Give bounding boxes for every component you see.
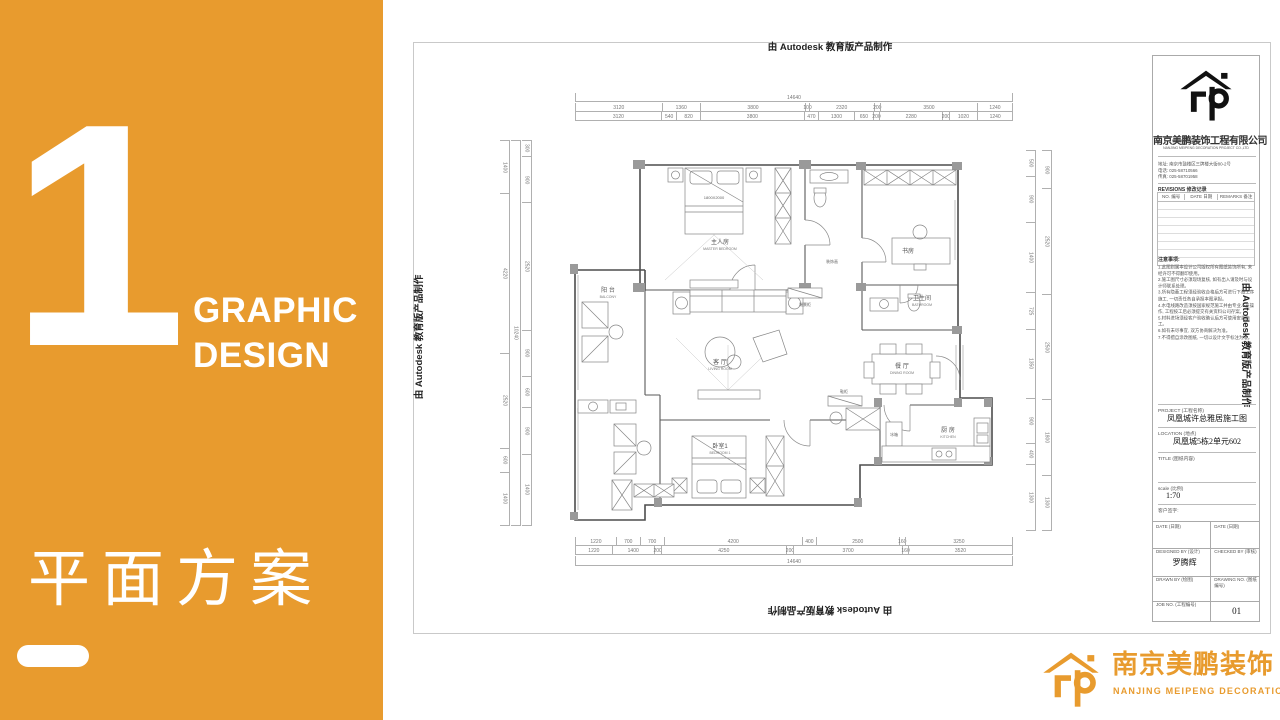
- study-desk: [892, 225, 950, 270]
- dimension-value: 3700: [793, 546, 902, 555]
- signature-grid: DATE (日期) DATE (日期) DESIGNED BY (设计) 罗腾辉…: [1153, 521, 1259, 621]
- dimension-value: 4220: [500, 193, 510, 352]
- drawing-no-cell: DRAWING NO. (图纸编号): [1210, 575, 1259, 602]
- company-logo-black: [1170, 60, 1242, 130]
- dimension-value: 200: [786, 546, 793, 555]
- dimension-value: 1300: [1042, 475, 1052, 530]
- rev-col-no: NO. 编号: [1158, 194, 1184, 200]
- slide: 1 GRAPHIC DESIGN 平面方案 由 Autodesk 教育版产品制作…: [0, 0, 1280, 720]
- brand-name-en: NANJING MEIPENG DECORATION: [1113, 686, 1280, 696]
- label-living-cn: 客 厅: [713, 358, 727, 366]
- company-fax: 传真: 025-58701958: [1158, 174, 1256, 180]
- dim-top-row2: 3120540820380047013006502002280200102012…: [575, 112, 1013, 121]
- dimension-value: 600: [522, 376, 532, 407]
- dimension-value: 1400: [522, 454, 532, 525]
- dimension-value: 1400: [1026, 222, 1036, 293]
- dimension-value: 900: [1042, 150, 1052, 188]
- dimension-value: 1300: [1026, 464, 1036, 530]
- dimension-value: 900: [522, 330, 532, 376]
- autodesk-stamp-bottom: 由 Autodesk 教育版产品制作: [700, 604, 960, 618]
- label-master-en: MASTER BEDROOM: [703, 247, 737, 251]
- brand-logo-house: [1032, 642, 1110, 716]
- label-balcony-cn: 阳 台: [601, 286, 615, 294]
- label-bathroom-en: BATHROOM: [912, 303, 932, 307]
- note-item: 4.水电线路改造须按国家规范施工并由专业人员操作, 工程按工后必须提交有关资料公…: [1158, 302, 1255, 315]
- rev-col-remarks: REMARKS 备注: [1217, 194, 1254, 200]
- dimension-value: 470: [804, 112, 818, 121]
- autodesk-stamp-left: 由 Autodesk 教育版产品制作: [411, 227, 425, 447]
- label-kitchen-cn: 厨 房: [941, 426, 955, 434]
- revisions-table: NO. 编号 DATE 日期 REMARKS 备注: [1157, 192, 1255, 266]
- dim-top-total: 14640: [575, 93, 1013, 102]
- designer-name: 罗腾辉: [1156, 557, 1213, 568]
- rev-row: [1158, 234, 1254, 242]
- location-value: 凤凰城5栋2单元602: [1158, 436, 1256, 447]
- dimension-value: 2520: [522, 202, 532, 330]
- chinese-title: 平面方案: [28, 528, 324, 618]
- label-balcony-en: BALCONY: [600, 295, 617, 299]
- date-cell-left: DATE (日期): [1153, 522, 1213, 549]
- rev-col-date: DATE 日期: [1184, 194, 1217, 200]
- dimension-value: 900: [1026, 398, 1036, 444]
- dimension-value: 900: [1026, 176, 1036, 222]
- dimension-value: 725: [1026, 292, 1036, 329]
- dimension-value: 3120: [575, 112, 661, 121]
- dimension-value: 400: [1026, 443, 1036, 464]
- title-block: 南京美鹏装饰工程有限公司 NANJING MEIPENG DECORATION …: [1152, 55, 1260, 622]
- label-shoe: 鞋柜: [840, 388, 848, 394]
- dimension-value: 14640: [575, 556, 1012, 566]
- heading-line1: GRAPHIC: [193, 288, 358, 333]
- dimension-value: 540: [661, 112, 677, 121]
- dimension-value: 1360: [662, 103, 700, 112]
- floor-plan: 主人房 MASTER BEDROOM 1800X2000 阳 台 BALCONY…: [570, 140, 1020, 540]
- dim-bottom-total: 14640: [575, 556, 1013, 566]
- note-item: 1.此图则属本设计公司版权所有图纸装饰所有, 未经许可不得翻印使用。: [1158, 264, 1255, 277]
- master-bathroom-fixtures: [810, 170, 848, 207]
- dimension-value: 300: [522, 140, 532, 156]
- note-item: 7.不得擅自涂改图纸, 一切以设计文字标注为准。: [1158, 334, 1255, 340]
- dimension-value: 4250: [661, 546, 786, 555]
- dim-right-inner: 500900140072513509004001300: [1026, 150, 1036, 531]
- dimension-value: 600: [500, 448, 510, 471]
- section-heading: GRAPHIC DESIGN: [193, 288, 358, 378]
- designed-by-cell: DESIGNED BY (设计) 罗腾辉: [1153, 547, 1213, 577]
- dimension-value: 650: [854, 112, 873, 121]
- dimension-value: 14640: [575, 93, 1012, 102]
- label-bathroom-cn: 卫生间: [913, 294, 931, 302]
- master-wardrobe: [775, 168, 791, 244]
- notes-list: 1.此图则属本设计公司版权所有图纸装饰所有, 未经许可不得翻印使用。 2.施工图…: [1158, 264, 1255, 403]
- dim-left-total: 10240: [511, 140, 521, 526]
- dimension-value: 2520: [1042, 188, 1052, 294]
- dining-set: [828, 344, 940, 406]
- dimension-value: 3800: [700, 112, 804, 121]
- project-value: 凤凰城许总雅居施工图: [1158, 413, 1256, 424]
- label-endcab: 端景柜: [799, 301, 811, 307]
- title-label: TITLE (图纸内容): [1158, 452, 1256, 462]
- dim-left-outer: 1400422025206001400: [500, 140, 510, 526]
- dimension-value: 3120: [575, 103, 662, 112]
- dimension-value: 820: [676, 112, 699, 121]
- master-bed: [668, 168, 761, 288]
- dimension-value: 1240: [977, 103, 1012, 112]
- decor-bar: [17, 645, 89, 667]
- note-item: 2.施工图尺寸必须现场复核, 如有出入请及时与设计师联系处理。: [1158, 277, 1255, 290]
- dim-left-inner: 30090025209006009001400: [522, 140, 532, 526]
- dimension-value: 2320: [809, 103, 874, 112]
- scale-value: 1:70: [1158, 491, 1256, 500]
- job-no-cell: JOB NO. (工程编号): [1153, 600, 1213, 622]
- study-storage: [864, 170, 956, 185]
- rev-row: [1158, 226, 1254, 234]
- dimension-value: 900: [522, 156, 532, 202]
- dimension-value: 200: [654, 546, 661, 555]
- dimension-value: 500: [1026, 150, 1036, 176]
- note-item: 3.所有隐蔽工程须经验收合格后方可进行下道工序施工, 一切责任各自承担本图承担。: [1158, 290, 1255, 303]
- designed-label: DESIGNED BY (设计): [1156, 549, 1200, 554]
- dimension-value: 1800: [1042, 399, 1052, 475]
- label-bedroom1-en: BEDROOM 1: [709, 451, 730, 455]
- dim-right-outer: 9002520250018001300: [1042, 150, 1052, 531]
- rev-row: [1158, 202, 1254, 210]
- dimension-value: 1350: [1026, 329, 1036, 397]
- dimension-value: 1300: [818, 112, 854, 121]
- label-bed-size: 1800X2000: [704, 195, 725, 200]
- dimension-value: 2280: [879, 112, 942, 121]
- brand-name-cn: 南京美鹏装饰: [1112, 644, 1274, 681]
- checked-by-cell: CHECKED BY (审核): [1210, 547, 1259, 577]
- label-kitchen-en: KITCHEN: [940, 435, 956, 439]
- dimension-value: 3520: [908, 546, 1012, 555]
- left-accent-panel: 1 GRAPHIC DESIGN 平面方案: [0, 0, 383, 720]
- dim-top-row1: 312013603800100232020035001240: [575, 103, 1013, 112]
- date-cell-right: DATE (日期): [1210, 522, 1259, 549]
- dimension-value: 1400: [612, 546, 654, 555]
- company-name-en: NANJING MEIPENG DECORATION PROJECT CO.,L…: [1161, 145, 1251, 149]
- label-master-cn: 主人房: [711, 238, 729, 246]
- dim-bottom-row2: 12201400200425020037001603520: [575, 546, 1013, 555]
- dimension-value: 2520: [500, 353, 510, 448]
- dimension-value: 1400: [500, 472, 510, 525]
- dimension-value: 1020: [949, 112, 978, 121]
- label-fridge: 冰箱: [890, 431, 898, 437]
- label-living-en: LIVING ROOM: [708, 367, 731, 371]
- rev-row: [1158, 242, 1254, 250]
- drawn-by-cell: DRAWN BY (绘图): [1153, 575, 1213, 602]
- note-item: 5.材料进场须经客户验收确认后方可使用安装施工。: [1158, 315, 1255, 328]
- dimension-value: 3800: [700, 103, 805, 112]
- dimension-value: 1220: [575, 546, 612, 555]
- dimension-value: 3500: [880, 103, 977, 112]
- dimension-value: 10240: [511, 140, 521, 525]
- label-dining-cn: 餐 厅: [895, 362, 909, 370]
- client-sign-label: 客户签字:: [1158, 504, 1256, 514]
- label-study-cn: 书房: [902, 247, 914, 255]
- dimension-value: 2500: [1042, 294, 1052, 399]
- drawing-number: 01: [1214, 606, 1259, 616]
- dimension-value: 1240: [977, 112, 1012, 121]
- rev-row: [1158, 210, 1254, 218]
- label-bedroom1-cn: 卧室1: [712, 442, 728, 450]
- label-art: 装饰画: [826, 258, 838, 264]
- autodesk-stamp-top: 由 Autodesk 教育版产品制作: [700, 39, 960, 53]
- bedroom1-bed: [672, 436, 784, 498]
- dimension-value: 900: [522, 407, 532, 453]
- section-number: 1: [10, 96, 177, 376]
- drawing-no-value-cell: 01: [1210, 600, 1259, 622]
- dimension-value: 1400: [500, 140, 510, 193]
- rev-row: [1158, 218, 1254, 226]
- label-dining-en: DINING ROOM: [890, 371, 914, 375]
- heading-line2: DESIGN: [193, 333, 358, 378]
- notes-title: 注意事项:: [1158, 256, 1259, 263]
- balcony-furniture: [582, 302, 623, 362]
